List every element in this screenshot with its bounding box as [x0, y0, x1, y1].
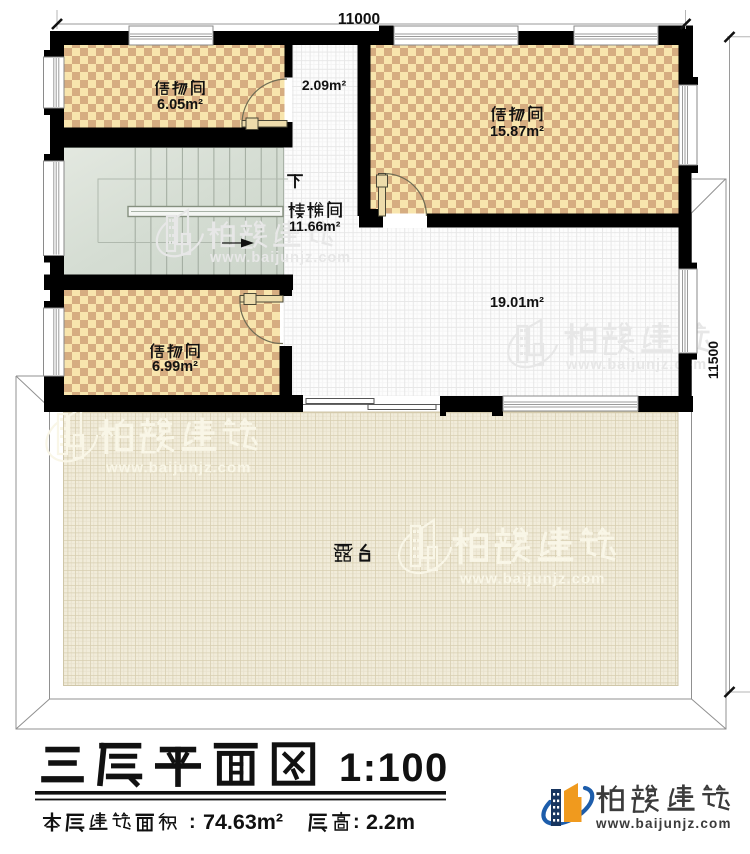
- svg-text:6.99m²: 6.99m²: [152, 359, 198, 375]
- svg-text::: :: [189, 811, 196, 833]
- svg-text:11500: 11500: [705, 341, 721, 379]
- svg-text:11000: 11000: [338, 11, 380, 28]
- svg-text:74.63m²: 74.63m²: [203, 810, 283, 834]
- svg-text:www.baijunjz.com: www.baijunjz.com: [459, 570, 605, 587]
- svg-text:www.baijunjz.com: www.baijunjz.com: [105, 459, 251, 476]
- svg-text:www.baijunjz.com: www.baijunjz.com: [209, 250, 351, 266]
- svg-text::: :: [353, 811, 360, 833]
- svg-text:2.09m²: 2.09m²: [302, 77, 347, 93]
- svg-text:2.2m: 2.2m: [366, 810, 415, 834]
- svg-text:19.01m²: 19.01m²: [490, 295, 544, 311]
- svg-text:15.87m²: 15.87m²: [490, 124, 544, 140]
- svg-text:11.66m²: 11.66m²: [289, 218, 341, 234]
- svg-text:www.baijunjz.com: www.baijunjz.com: [595, 816, 732, 831]
- svg-text:1:100: 1:100: [339, 746, 449, 790]
- svg-text:6.05m²: 6.05m²: [157, 97, 203, 113]
